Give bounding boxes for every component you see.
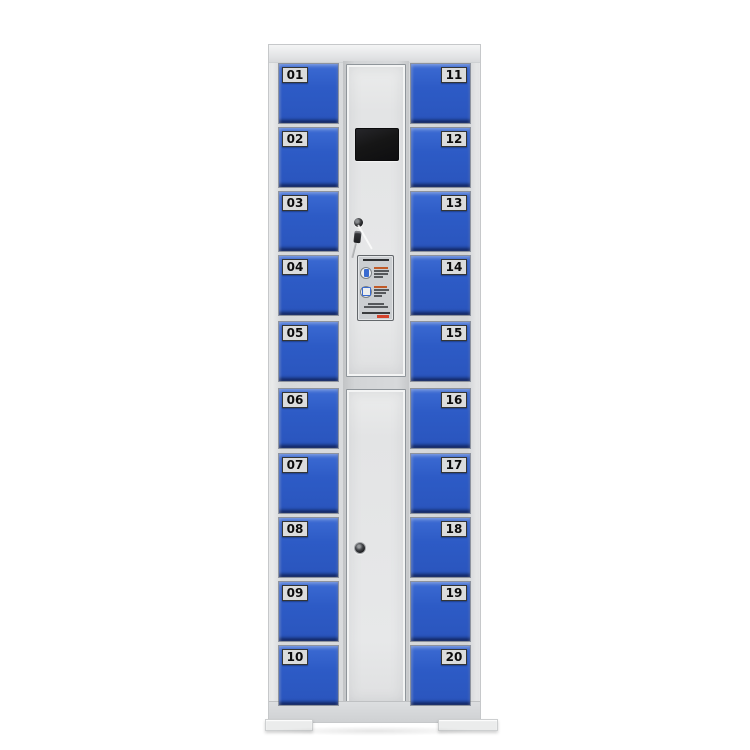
door-number-label: 02: [282, 131, 308, 147]
door-number-label: 04: [282, 259, 308, 275]
door-number-label: 19: [441, 585, 467, 601]
locker-door-19[interactable]: 19: [411, 582, 470, 641]
key-shaft-icon: [351, 243, 357, 258]
locker-door-15[interactable]: 15: [411, 322, 470, 381]
instruction-sticker: [357, 255, 394, 321]
door-number-label: 01: [282, 67, 308, 83]
locker-door-17[interactable]: 17: [411, 454, 470, 513]
door-number-label: 10: [282, 649, 308, 665]
door-number-label: 16: [441, 392, 467, 408]
central-panel-upper-door[interactable]: [346, 64, 406, 377]
door-number-label: 12: [441, 131, 467, 147]
locker-door-10[interactable]: 10: [279, 646, 338, 705]
locker-door-08[interactable]: 08: [279, 518, 338, 577]
door-number-label: 06: [282, 392, 308, 408]
phone-icon: [360, 267, 372, 279]
sticker-note-lines: [360, 303, 391, 308]
locker-door-20[interactable]: 20: [411, 646, 470, 705]
door-number-label: 11: [441, 67, 467, 83]
door-number-label: 17: [441, 457, 467, 473]
text-lines: [374, 267, 391, 278]
locker-door-16[interactable]: 16: [411, 389, 470, 448]
locker-door-03[interactable]: 03: [279, 192, 338, 251]
locker-door-09[interactable]: 09: [279, 582, 338, 641]
door-number-label: 13: [441, 195, 467, 211]
locker-door-11[interactable]: 11: [411, 64, 470, 123]
locker-door-07[interactable]: 07: [279, 454, 338, 513]
product-photo: 0102030405060708091011121314151617181920: [0, 0, 750, 750]
door-number-label: 03: [282, 195, 308, 211]
sticker-title-text: [360, 258, 391, 262]
central-panel-lower-door[interactable]: [346, 389, 406, 704]
door-number-label: 09: [282, 585, 308, 601]
sticker-step-2: [360, 283, 391, 300]
key-lock-icon[interactable]: [354, 542, 366, 554]
text-line: [362, 312, 390, 314]
scan-code-icon: [360, 286, 372, 298]
locker-cabinet: 0102030405060708091011121314151617181920: [268, 44, 481, 723]
locker-door-18[interactable]: 18: [411, 518, 470, 577]
locker-door-14[interactable]: 14: [411, 256, 470, 315]
door-number-label: 14: [441, 259, 467, 275]
sticker-step-1: [360, 264, 391, 281]
door-number-label: 07: [282, 457, 308, 473]
locker-door-06[interactable]: 06: [279, 389, 338, 448]
locker-door-05[interactable]: 05: [279, 322, 338, 381]
left-foot: [265, 719, 313, 731]
locker-door-02[interactable]: 02: [279, 128, 338, 187]
control-screen[interactable]: [355, 128, 399, 161]
door-number-label: 20: [441, 649, 467, 665]
locker-door-13[interactable]: 13: [411, 192, 470, 251]
warning-accent: [377, 315, 389, 319]
door-number-label: 18: [441, 521, 467, 537]
locker-door-01[interactable]: 01: [279, 64, 338, 123]
text-lines: [374, 286, 391, 297]
locker-door-12[interactable]: 12: [411, 128, 470, 187]
sticker-footer: [360, 312, 391, 319]
right-foot: [438, 719, 498, 731]
door-number-label: 05: [282, 325, 308, 341]
door-number-label: 08: [282, 521, 308, 537]
locker-door-04[interactable]: 04: [279, 256, 338, 315]
door-number-label: 15: [441, 325, 467, 341]
